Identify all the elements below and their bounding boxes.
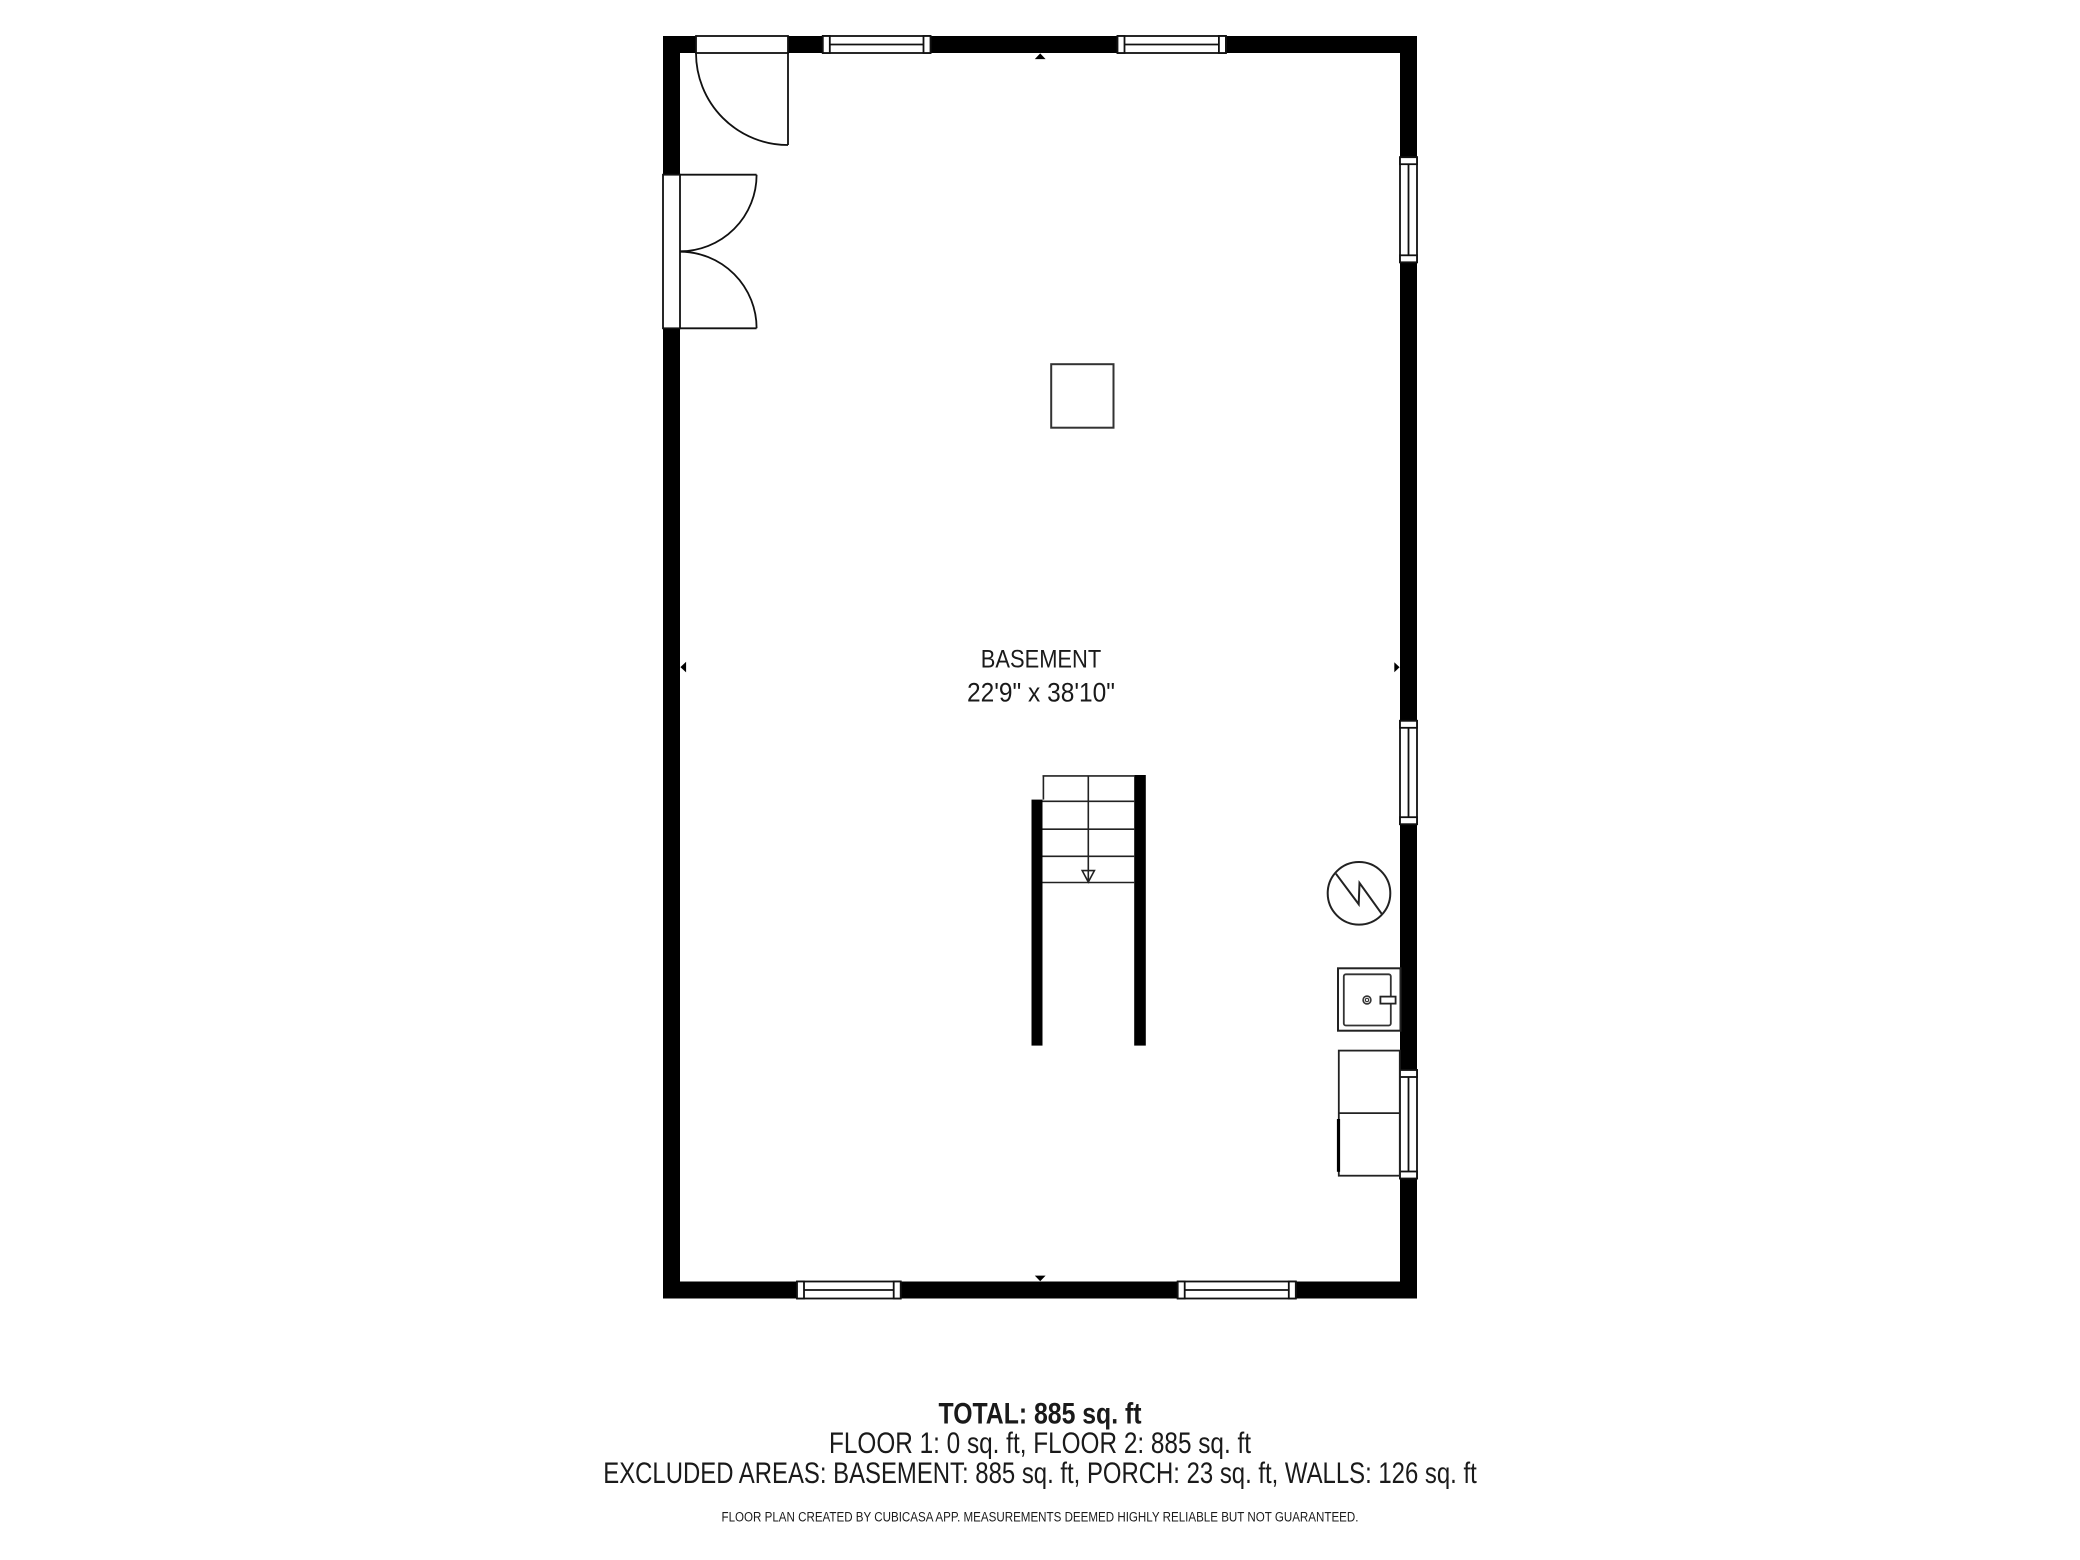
svg-text:22'9" x 38'10": 22'9" x 38'10" — [967, 678, 1115, 708]
svg-text:FLOOR 1: 0 sq. ft, FLOOR 2: 88: FLOOR 1: 0 sq. ft, FLOOR 2: 885 sq. ft — [829, 1427, 1252, 1460]
svg-text:EXCLUDED AREAS: BASEMENT: 885: EXCLUDED AREAS: BASEMENT: 885 sq. ft, PO… — [603, 1457, 1477, 1490]
svg-text:FLOOR PLAN CREATED BY CUBICASA: FLOOR PLAN CREATED BY CUBICASA APP. MEAS… — [722, 1510, 1359, 1525]
svg-text:TOTAL: 885 sq. ft: TOTAL: 885 sq. ft — [939, 1398, 1142, 1431]
svg-text:BASEMENT: BASEMENT — [981, 646, 1102, 674]
